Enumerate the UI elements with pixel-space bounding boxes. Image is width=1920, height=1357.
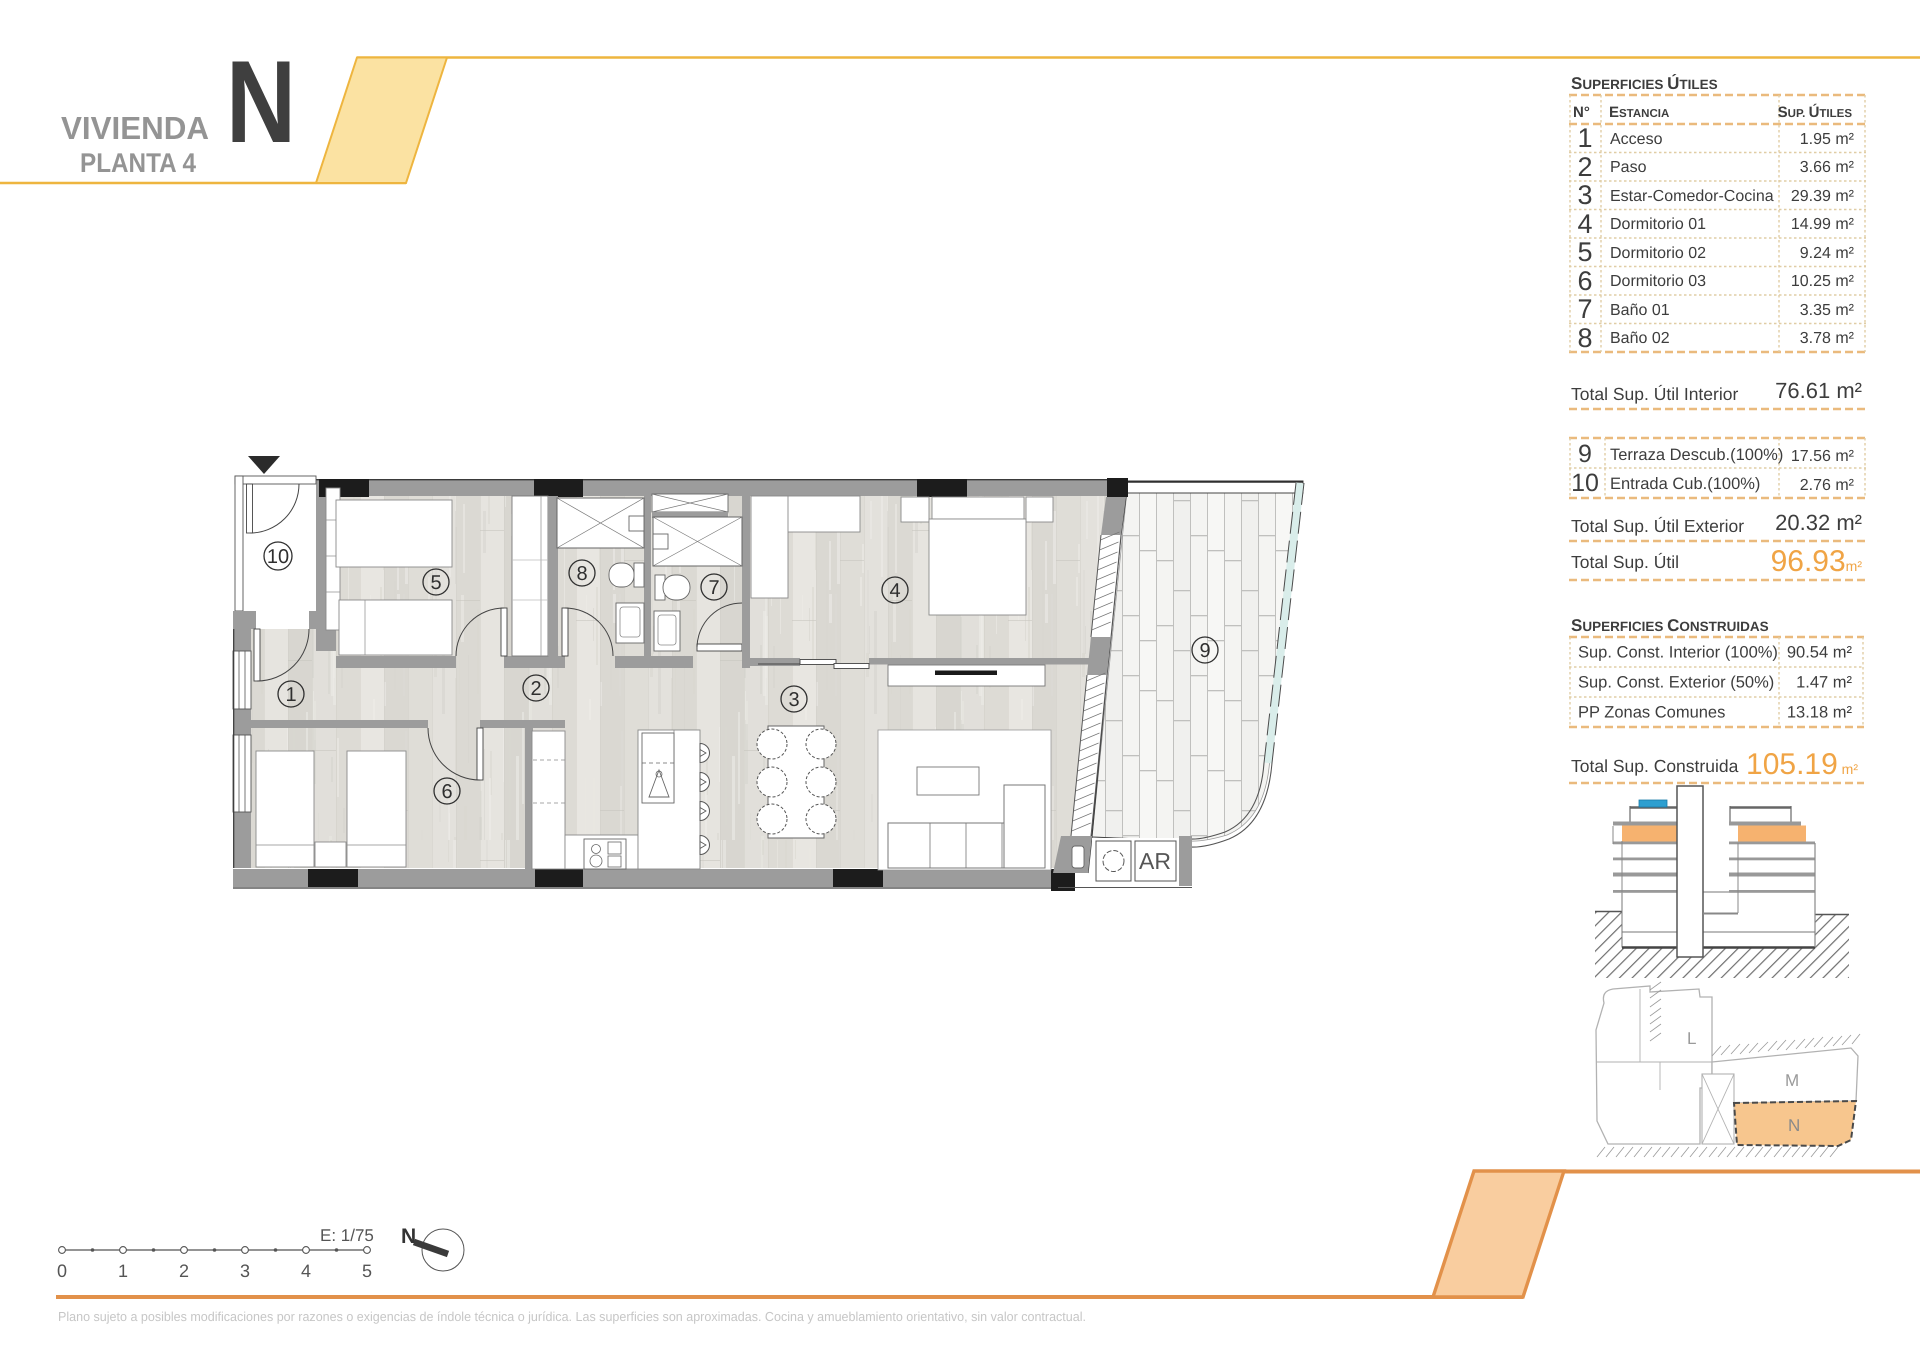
svg-text:2: 2 bbox=[530, 678, 541, 700]
svg-text:Entrada Cub.(100%): Entrada Cub.(100%) bbox=[1610, 475, 1760, 493]
svg-text:4: 4 bbox=[301, 1261, 311, 1281]
svg-text:Terraza Descub.(100%): Terraza Descub.(100%) bbox=[1610, 446, 1783, 464]
svg-text:SUP. ÚTILES: SUP. ÚTILES bbox=[1778, 103, 1853, 121]
svg-text:Total Sup. Construida: Total Sup. Construida bbox=[1571, 756, 1739, 776]
svg-text:13.18 m²: 13.18 m² bbox=[1787, 704, 1853, 722]
svg-text:90.54 m²: 90.54 m² bbox=[1787, 644, 1853, 662]
svg-text:1: 1 bbox=[285, 684, 296, 706]
svg-text:SUPERFICIES ÚTILES: SUPERFICIES ÚTILES bbox=[1571, 73, 1718, 93]
svg-text:Dormitorio 02: Dormitorio 02 bbox=[1610, 245, 1706, 262]
svg-text:AR: AR bbox=[1139, 848, 1171, 874]
svg-text:14.99 m²: 14.99 m² bbox=[1791, 216, 1855, 233]
svg-text:5: 5 bbox=[430, 572, 441, 594]
svg-text:Plano sujeto a posibles modifi: Plano sujeto a posibles modificaciones p… bbox=[58, 1309, 1086, 1324]
svg-text:2: 2 bbox=[1577, 152, 1592, 182]
svg-text:1: 1 bbox=[118, 1261, 128, 1281]
svg-text:3.35 m²: 3.35 m² bbox=[1800, 302, 1855, 319]
svg-text:4: 4 bbox=[1577, 209, 1592, 239]
svg-text:Baño 02: Baño 02 bbox=[1610, 330, 1670, 347]
svg-text:SUPERFICIES CONSTRUIDAS: SUPERFICIES CONSTRUIDAS bbox=[1571, 616, 1769, 635]
svg-text:7: 7 bbox=[708, 577, 719, 599]
svg-text:N°: N° bbox=[1573, 104, 1590, 121]
svg-text:L: L bbox=[1687, 1029, 1696, 1048]
svg-text:76.61 m²: 76.61 m² bbox=[1775, 378, 1862, 403]
svg-text:9.24 m²: 9.24 m² bbox=[1800, 245, 1855, 262]
svg-text:17.56 m²: 17.56 m² bbox=[1791, 448, 1855, 465]
svg-text:5: 5 bbox=[362, 1261, 372, 1281]
svg-text:20.32 m²: 20.32 m² bbox=[1775, 510, 1862, 535]
svg-text:1: 1 bbox=[1577, 123, 1592, 153]
svg-text:E: 1/75: E: 1/75 bbox=[320, 1226, 374, 1245]
svg-text:10: 10 bbox=[1571, 469, 1599, 497]
svg-text:4: 4 bbox=[889, 580, 900, 602]
svg-text:3: 3 bbox=[788, 689, 799, 711]
svg-text:10: 10 bbox=[267, 546, 289, 568]
svg-text:3: 3 bbox=[240, 1261, 250, 1281]
svg-text:PP Zonas Comunes: PP Zonas Comunes bbox=[1578, 704, 1725, 722]
svg-text:Estar-Comedor-Cocina: Estar-Comedor-Cocina bbox=[1610, 188, 1774, 205]
svg-text:ESTANCIA: ESTANCIA bbox=[1609, 104, 1669, 121]
svg-text:6: 6 bbox=[441, 781, 452, 803]
svg-text:Total Sup. Útil: Total Sup. Útil bbox=[1571, 552, 1679, 572]
svg-text:1.95 m²: 1.95 m² bbox=[1800, 131, 1855, 148]
svg-text:8: 8 bbox=[576, 563, 587, 585]
svg-text:Sup. Const. Interior (100%): Sup. Const. Interior (100%) bbox=[1578, 644, 1778, 662]
svg-text:105.19 m²: 105.19 m² bbox=[1746, 748, 1858, 781]
svg-text:PLANTA 4: PLANTA 4 bbox=[80, 148, 196, 178]
svg-text:Sup. Const. Exterior (50%): Sup. Const. Exterior (50%) bbox=[1578, 674, 1774, 692]
svg-text:N: N bbox=[226, 36, 296, 167]
svg-text:Paso: Paso bbox=[1610, 159, 1647, 176]
svg-text:96.93m²: 96.93m² bbox=[1771, 545, 1863, 578]
svg-text:VIVIENDA: VIVIENDA bbox=[61, 110, 209, 146]
svg-text:1.47 m²: 1.47 m² bbox=[1796, 674, 1852, 692]
svg-text:8: 8 bbox=[1577, 323, 1592, 353]
svg-text:2: 2 bbox=[179, 1261, 189, 1281]
svg-text:Total Sup. Útil Exterior: Total Sup. Útil Exterior bbox=[1571, 516, 1744, 536]
svg-text:M: M bbox=[1785, 1071, 1799, 1090]
svg-text:7: 7 bbox=[1577, 294, 1592, 324]
svg-text:2.76 m²: 2.76 m² bbox=[1800, 477, 1855, 494]
svg-text:3.66 m²: 3.66 m² bbox=[1800, 159, 1855, 176]
svg-text:3.78 m²: 3.78 m² bbox=[1800, 330, 1855, 347]
svg-text:Dormitorio 01: Dormitorio 01 bbox=[1610, 216, 1706, 233]
svg-text:5: 5 bbox=[1577, 237, 1592, 267]
svg-text:N: N bbox=[1788, 1116, 1800, 1135]
svg-text:10.25 m²: 10.25 m² bbox=[1791, 273, 1855, 290]
svg-text:Total Sup. Útil Interior: Total Sup. Útil Interior bbox=[1571, 384, 1738, 404]
svg-text:9: 9 bbox=[1578, 440, 1592, 468]
svg-text:3: 3 bbox=[1577, 180, 1592, 210]
svg-text:0: 0 bbox=[57, 1261, 67, 1281]
svg-text:29.39 m²: 29.39 m² bbox=[1791, 188, 1855, 205]
svg-text:9: 9 bbox=[1199, 640, 1210, 662]
svg-text:6: 6 bbox=[1577, 266, 1592, 296]
svg-text:Acceso: Acceso bbox=[1610, 131, 1663, 148]
svg-text:Baño 01: Baño 01 bbox=[1610, 302, 1670, 319]
svg-text:Dormitorio 03: Dormitorio 03 bbox=[1610, 273, 1706, 290]
